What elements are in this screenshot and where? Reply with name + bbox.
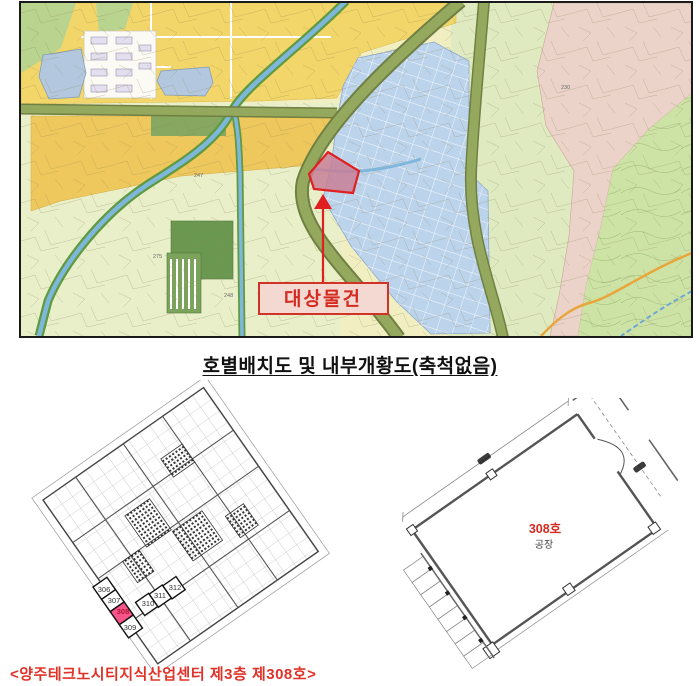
building-caption: <양주테크노시티지식산업센터 제3층 제308호> bbox=[10, 663, 410, 684]
unit-308-label: 308호 bbox=[529, 522, 562, 536]
unit-use-label: 공장 bbox=[535, 539, 553, 551]
target-label-text: 대상물건 bbox=[284, 288, 362, 310]
dimension-text-blob-top bbox=[477, 452, 492, 465]
parcel-label-247: 247 bbox=[194, 173, 203, 179]
building-grid-rotated bbox=[31, 380, 329, 670]
road-horizontal bbox=[21, 109, 337, 113]
unit-label-306: 306 bbox=[98, 585, 111, 594]
unit-label-310: 310 bbox=[142, 599, 155, 608]
unit-label-309: 309 bbox=[124, 623, 137, 632]
parcel-label-230: 230 bbox=[561, 85, 570, 91]
parcel-label-248: 248 bbox=[224, 293, 233, 299]
floor-layout-plan: 306 307 308 309 310 311 312 bbox=[25, 380, 370, 670]
parcel-label-275: 275 bbox=[153, 254, 162, 260]
dimension-text-blob-right bbox=[633, 461, 647, 473]
location-map-canvas: 230 247 275 248 대상물건 bbox=[21, 3, 691, 336]
unit-label-307: 307 bbox=[108, 596, 121, 605]
location-map: 230 247 275 248 대상물건 bbox=[19, 1, 693, 338]
appraisal-document-page: 230 247 275 248 대상물건 호별배치도 및 내부개황도(축척없음) bbox=[0, 0, 700, 686]
unit-308-plan: 308호 공장 bbox=[395, 398, 695, 670]
section-title-text: 호별배치도 및 내부개황도(축척없음) bbox=[203, 356, 498, 377]
unit-label-312: 312 bbox=[169, 583, 182, 592]
unit-label-308: 308 bbox=[117, 607, 130, 616]
unit-label-311: 311 bbox=[154, 591, 166, 600]
section-title: 호별배치도 및 내부개황도(축척없음) bbox=[0, 351, 700, 378]
